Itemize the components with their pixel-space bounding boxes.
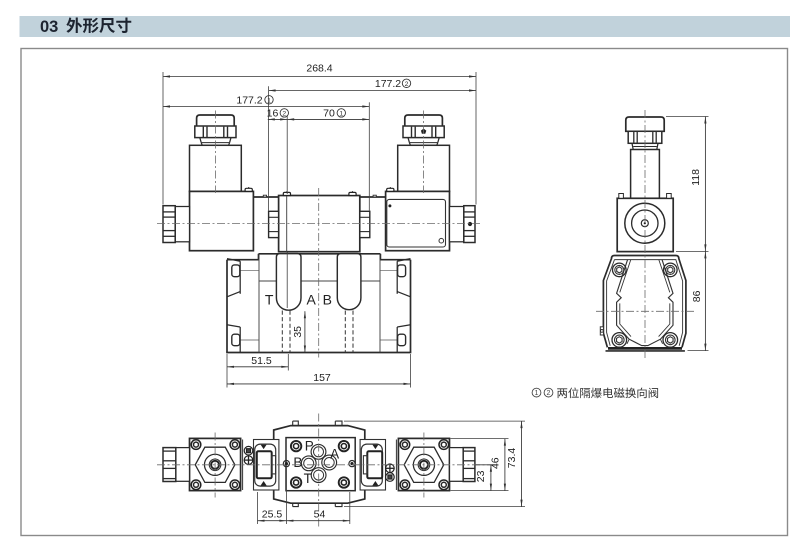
svg-text:177.2: 177.2 — [375, 78, 401, 90]
svg-text:2: 2 — [547, 390, 551, 397]
svg-text:73.4: 73.4 — [506, 448, 518, 469]
svg-text:54: 54 — [314, 509, 326, 521]
svg-text:51.5: 51.5 — [251, 355, 272, 367]
svg-text:268.4: 268.4 — [306, 63, 332, 75]
svg-text:A: A — [307, 292, 317, 308]
svg-text:23: 23 — [475, 470, 487, 482]
svg-text:86: 86 — [691, 290, 703, 302]
svg-text:16: 16 — [267, 108, 279, 120]
svg-text:A: A — [330, 446, 339, 461]
svg-text:118: 118 — [690, 169, 702, 186]
svg-text:46: 46 — [489, 457, 501, 469]
svg-text:157: 157 — [313, 372, 331, 384]
svg-text:70: 70 — [323, 108, 335, 120]
svg-text:177.2: 177.2 — [236, 94, 262, 106]
svg-text:2: 2 — [405, 81, 409, 88]
svg-text:1: 1 — [535, 390, 539, 397]
svg-text:B: B — [293, 455, 302, 470]
svg-text:25.5: 25.5 — [262, 509, 283, 521]
svg-text:T: T — [265, 292, 274, 308]
svg-text:2: 2 — [282, 110, 286, 117]
svg-text:P: P — [305, 439, 314, 454]
svg-text:03: 03 — [40, 18, 58, 36]
svg-text:1: 1 — [339, 110, 343, 117]
svg-text:1: 1 — [267, 97, 271, 104]
svg-text:35: 35 — [292, 326, 304, 338]
svg-text:B: B — [323, 292, 332, 308]
svg-text:T: T — [304, 471, 312, 486]
